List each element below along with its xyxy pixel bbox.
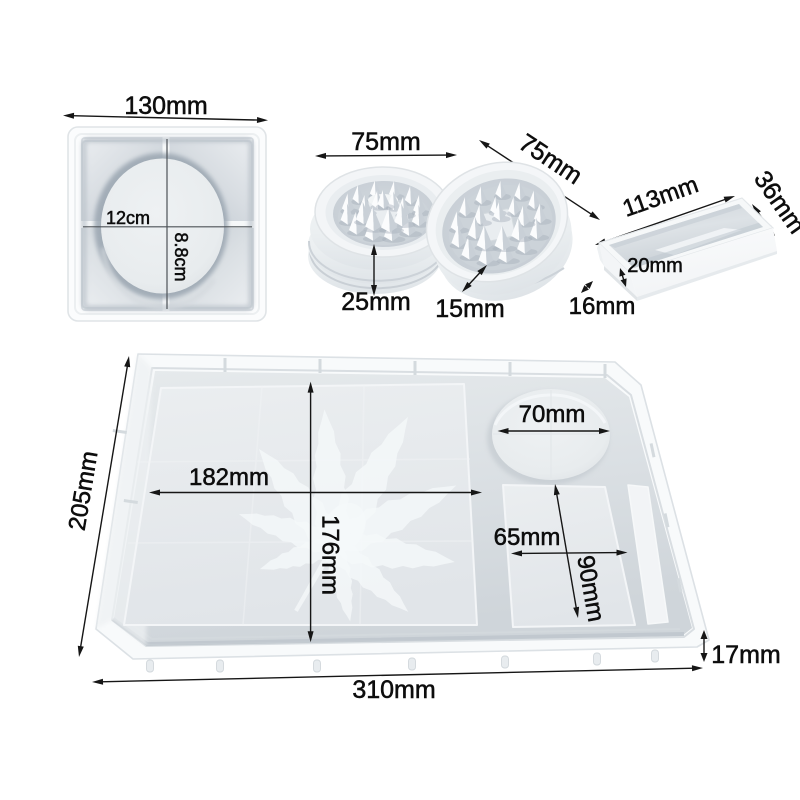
svg-text:12cm: 12cm (106, 208, 150, 228)
svg-text:182mm: 182mm (189, 464, 269, 491)
svg-text:176mm: 176mm (317, 515, 344, 595)
svg-text:15mm: 15mm (435, 295, 504, 323)
svg-text:65mm: 65mm (494, 524, 561, 551)
svg-text:25mm: 25mm (341, 288, 410, 316)
svg-text:20mm: 20mm (627, 255, 683, 277)
svg-text:16mm: 16mm (569, 293, 636, 320)
svg-text:130mm: 130mm (124, 92, 207, 120)
svg-text:310mm: 310mm (352, 676, 435, 704)
svg-text:8.8cm: 8.8cm (171, 232, 191, 281)
svg-text:75mm: 75mm (351, 128, 420, 156)
svg-text:17mm: 17mm (711, 641, 780, 669)
svg-text:70mm: 70mm (519, 401, 586, 428)
